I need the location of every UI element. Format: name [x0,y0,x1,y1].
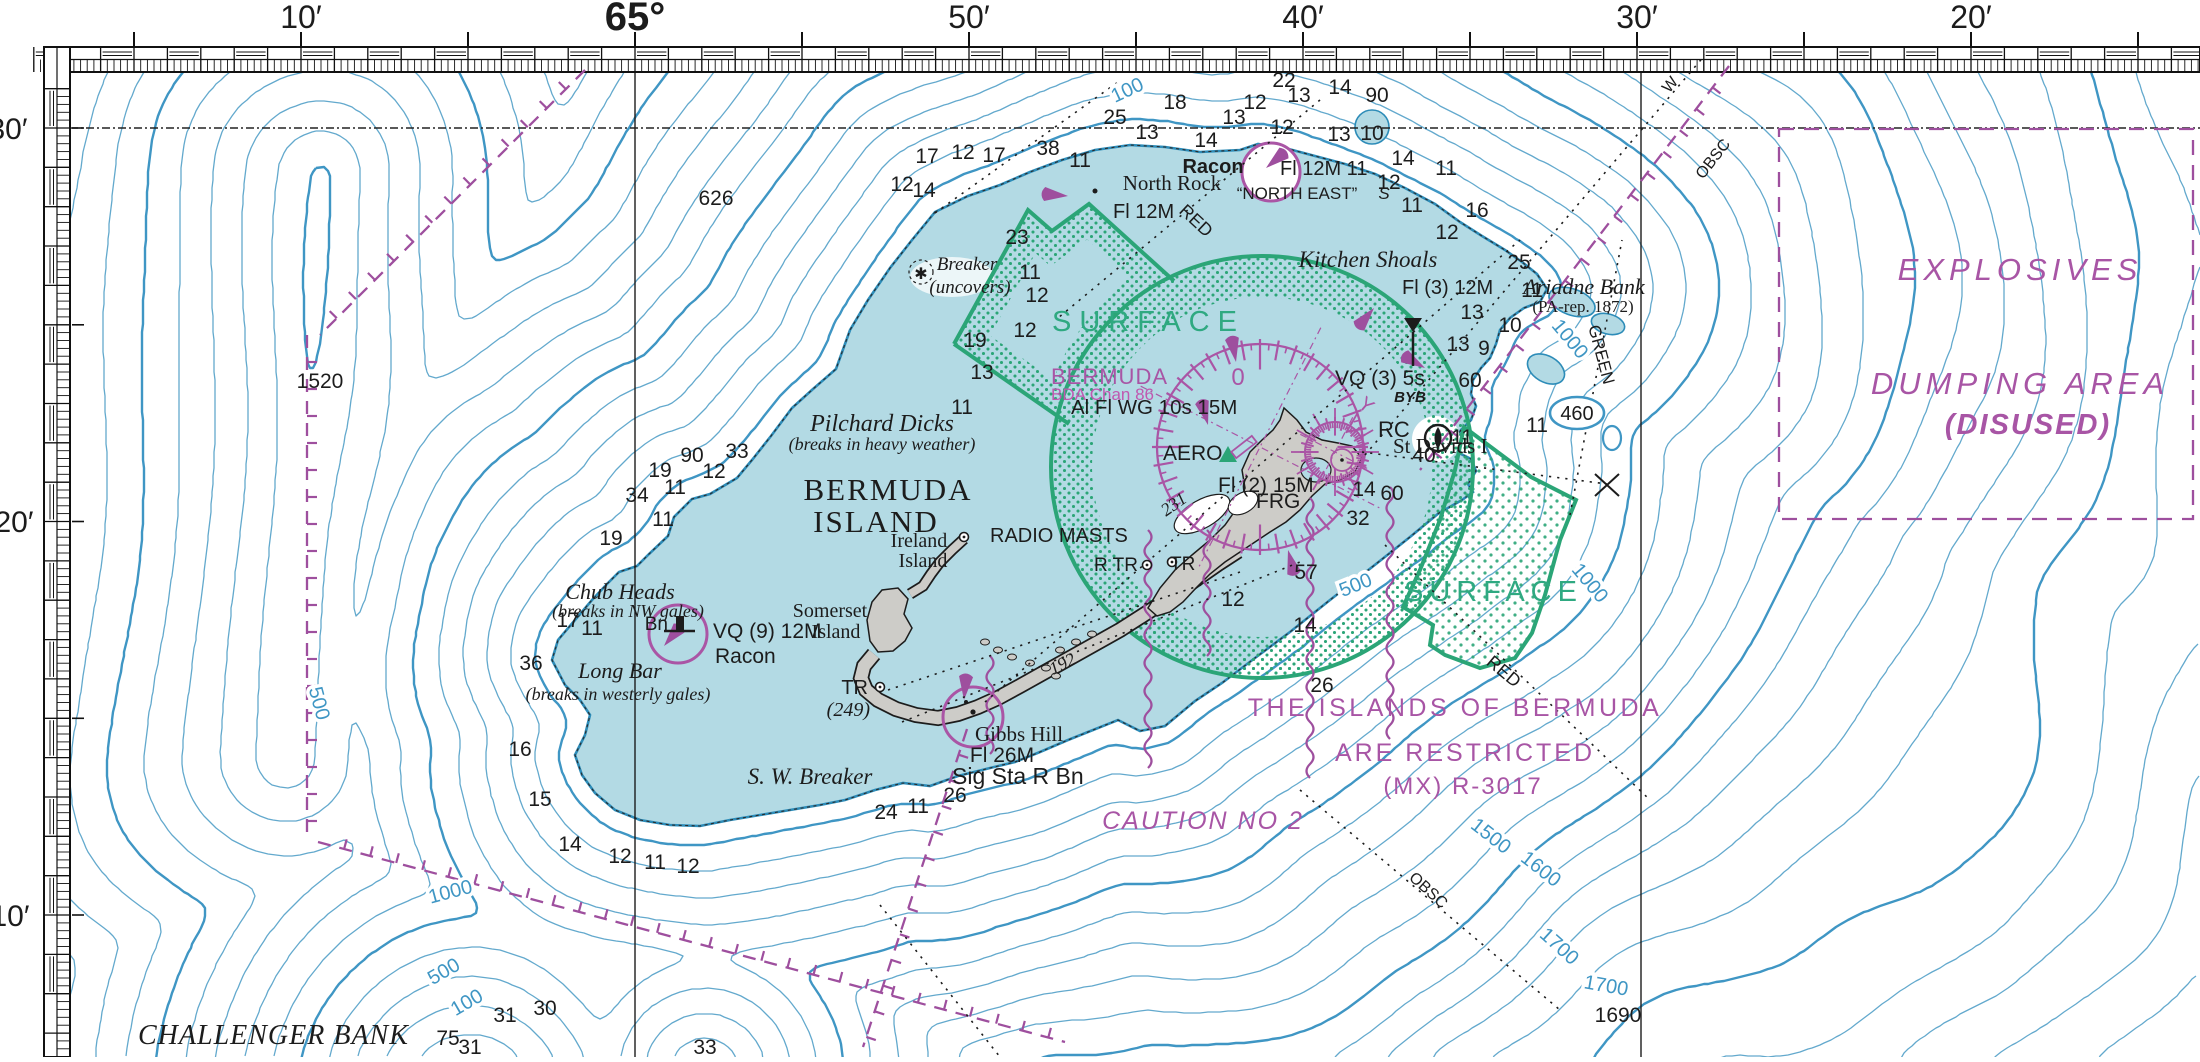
svg-text:14: 14 [1328,76,1352,99]
svg-text:Racon: Racon [1182,156,1243,178]
svg-text:SURFACE: SURFACE [1404,576,1583,608]
svg-text:✱: ✱ [914,266,927,283]
svg-text:13: 13 [1222,106,1245,129]
svg-text:FRG: FRG [1256,490,1300,513]
svg-text:10: 10 [1498,314,1521,337]
svg-text:460: 460 [1560,403,1593,425]
svg-text:13: 13 [970,361,993,384]
svg-text:25: 25 [1507,251,1530,274]
svg-text:12: 12 [608,845,631,868]
svg-text:CHALLENGER BANK: CHALLENGER BANK [138,1020,409,1051]
svg-text:Sig Sta R Bn: Sig Sta R Bn [952,763,1084,789]
svg-text:19: 19 [963,329,986,352]
svg-text:10′: 10′ [0,900,30,933]
svg-text:23: 23 [1005,226,1028,249]
svg-text:11: 11 [1521,279,1543,302]
svg-text:18: 18 [1163,91,1186,114]
svg-text:RADIO MASTS: RADIO MASTS [990,525,1128,547]
svg-text:VQ (9) 12M: VQ (9) 12M [713,620,822,643]
svg-text:11: 11 [652,508,674,531]
svg-text:12: 12 [951,141,974,164]
svg-text:17: 17 [556,609,579,632]
svg-text:50′: 50′ [948,0,990,35]
svg-text:CAUTION NO 2: CAUTION NO 2 [1102,807,1304,835]
svg-text:10′: 10′ [280,0,322,35]
svg-text:VQ (3) 5s: VQ (3) 5s [1335,367,1425,390]
svg-text:14: 14 [1293,614,1317,637]
svg-text:TR: TR [841,677,868,699]
svg-text:0: 0 [1231,364,1244,391]
svg-text:30′: 30′ [1616,0,1658,35]
svg-text:40′: 40′ [1282,0,1324,35]
svg-text:12: 12 [1243,91,1266,114]
svg-text:11: 11 [1526,414,1548,437]
svg-text:Al Fl WG 10s 15M: Al Fl WG 10s 15M [1071,396,1237,419]
svg-text:31: 31 [493,1004,516,1027]
svg-text:60: 60 [1380,482,1403,505]
svg-text:40: 40 [1412,444,1435,467]
svg-text:13: 13 [1135,121,1158,144]
svg-text:20′: 20′ [1950,0,1992,35]
svg-text:26: 26 [1310,674,1333,697]
svg-text:33: 33 [693,1036,716,1057]
svg-text:25: 25 [1103,106,1126,129]
svg-text:12: 12 [890,173,913,196]
svg-text:Fl 12M 11: Fl 12M 11 [1280,158,1367,180]
svg-text:11: 11 [664,476,686,499]
svg-text:Bn: Bn [645,614,668,635]
svg-text:(breaks in heavy weather): (breaks in heavy weather) [789,434,976,455]
svg-text:14: 14 [1194,129,1218,152]
svg-text:17: 17 [915,145,938,168]
svg-text:Racon: Racon [715,645,776,668]
svg-text:1690: 1690 [1595,1004,1642,1027]
svg-text:DUMPING AREA: DUMPING AREA [1871,366,2169,401]
svg-text:14: 14 [912,179,936,202]
svg-text:12: 12 [1221,588,1244,611]
svg-text:11: 11 [1451,426,1473,449]
svg-text:Fl 12M: Fl 12M [1113,201,1174,223]
svg-text:1520: 1520 [297,370,344,393]
svg-text:12: 12 [1013,319,1036,342]
svg-text:26: 26 [943,784,966,807]
svg-text:57: 57 [1294,561,1317,584]
svg-text:Fl (3) 12M: Fl (3) 12M [1402,277,1493,299]
svg-text:12: 12 [1435,221,1458,244]
svg-text:Long Bar: Long Bar [577,658,662,683]
svg-text:32: 32 [1346,507,1369,530]
svg-text:65°: 65° [605,0,666,39]
svg-text:THE ISLANDS OF BERMUDA: THE ISLANDS OF BERMUDA [1248,694,1663,722]
svg-text:(DISUSED): (DISUSED) [1945,409,2111,441]
svg-text:33: 33 [725,440,748,463]
svg-text:9: 9 [1478,337,1490,360]
svg-text:BYB: BYB [1394,389,1426,406]
svg-text:12: 12 [702,460,725,483]
svg-text:Kitchen Shoals: Kitchen Shoals [1298,247,1438,272]
svg-text:11: 11 [1019,261,1041,284]
svg-text:11: 11 [1435,157,1457,180]
svg-text:90: 90 [1365,84,1388,107]
svg-text:Breaker: Breaker [937,254,998,275]
svg-text:19: 19 [599,527,622,550]
svg-text:13: 13 [1460,301,1483,324]
svg-text:St Davids I: St Davids I [1393,434,1488,458]
svg-text:38: 38 [1036,137,1059,160]
svg-text:31: 31 [458,1036,481,1057]
svg-text:75: 75 [436,1027,459,1050]
svg-text:15: 15 [528,788,551,811]
svg-text:11: 11 [951,396,973,419]
svg-text:BERMUDA: BERMUDA [803,472,972,507]
svg-text:12: 12 [1025,284,1048,307]
svg-text:11: 11 [1401,194,1423,217]
svg-text:24: 24 [874,801,898,824]
svg-text:ARE RESTRICTED: ARE RESTRICTED [1335,739,1595,767]
svg-text:60: 60 [1458,369,1481,392]
svg-text:(MX) R-3017: (MX) R-3017 [1383,773,1542,800]
svg-text:34: 34 [625,484,649,507]
svg-text:16: 16 [508,738,531,761]
svg-text:S. W. Breaker: S. W. Breaker [748,764,874,789]
svg-text:R TR: R TR [1094,555,1138,576]
svg-text:20′: 20′ [0,506,34,539]
svg-text:AERO: AERO [1163,442,1223,465]
svg-text:EXPLOSIVES: EXPLOSIVES [1898,252,2143,287]
svg-text:30: 30 [533,997,556,1020]
svg-text:13: 13 [1446,333,1469,356]
svg-text:Gibbs Hill: Gibbs Hill [975,722,1063,746]
svg-text:Somerset: Somerset [793,600,868,622]
svg-text:Island: Island [899,550,948,572]
svg-text:10: 10 [1360,122,1383,145]
svg-text:14: 14 [1352,478,1376,501]
svg-text:12: 12 [676,855,699,878]
svg-text:SURFACE: SURFACE [1052,306,1245,338]
svg-text:17: 17 [982,144,1005,167]
svg-text:12: 12 [1270,116,1293,139]
svg-text:16: 16 [1465,199,1488,222]
svg-text:11: 11 [581,617,603,640]
svg-text:12: 12 [1377,171,1400,194]
svg-text:13: 13 [1287,84,1310,107]
svg-text:30′: 30′ [0,113,28,146]
svg-text:626: 626 [698,187,733,210]
svg-text:TR: TR [1170,554,1195,575]
svg-text:11: 11 [644,851,666,874]
svg-text:11: 11 [1069,149,1091,172]
svg-text:Ireland: Ireland [891,530,948,552]
svg-text:14: 14 [558,833,582,856]
svg-text:(249): (249) [827,699,871,721]
svg-text:11: 11 [907,795,929,818]
svg-text:(PA-rep. 1872): (PA-rep. 1872) [1532,297,1633,316]
svg-text:14: 14 [1391,147,1415,170]
svg-text:“NORTH EAST”: “NORTH EAST” [1237,184,1358,203]
svg-text:13: 13 [1327,123,1350,146]
svg-text:90: 90 [680,444,703,467]
svg-text:(uncovers): (uncovers) [929,277,1010,298]
svg-text:(breaks in westerly gales): (breaks in westerly gales) [526,684,711,705]
svg-text:36: 36 [519,652,542,675]
